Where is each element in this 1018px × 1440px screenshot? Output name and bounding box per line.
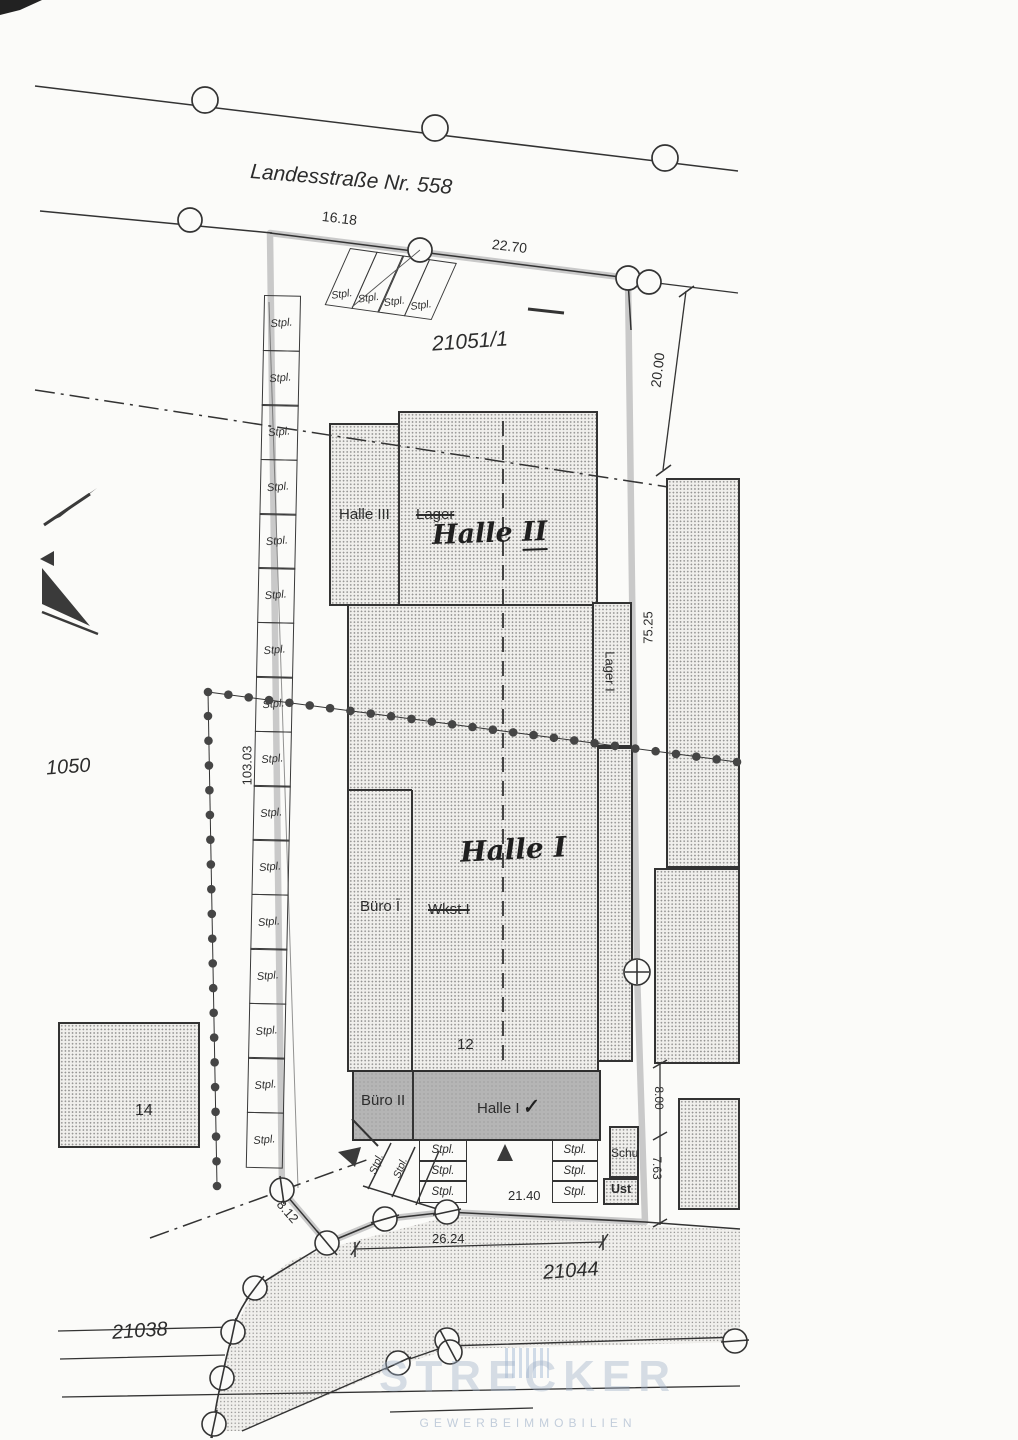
parking-stall-label: Stpl. bbox=[253, 1133, 276, 1147]
scan-artifact bbox=[0, 0, 42, 15]
parking-stall-label: Stpl. bbox=[563, 1144, 586, 1156]
parking-stall: Stpl. bbox=[257, 567, 295, 624]
parking-stall: Stpl. bbox=[249, 948, 287, 1005]
parking-stall-label: Stpl. bbox=[262, 698, 285, 712]
fence-line-vertical bbox=[208, 692, 217, 1186]
neighbor-building-lower bbox=[678, 1098, 740, 1210]
slanted-stall-label-2: Stpl. bbox=[391, 1156, 410, 1180]
dim-ne-depth: 20.00 bbox=[647, 352, 667, 389]
label-halle1-handwritten: Halle I bbox=[459, 830, 567, 869]
dim-south-front: 21.40 bbox=[508, 1188, 541, 1203]
label-buero1: Büro Ī bbox=[360, 898, 400, 915]
parking-stall-label: Stpl. bbox=[258, 915, 281, 929]
parcel-number-southwest: 21038 bbox=[111, 1318, 168, 1345]
parking-stall: Stpl. bbox=[248, 1003, 286, 1060]
mark-dash bbox=[528, 309, 564, 313]
watermark-subtitle: GEWERBEIMMOBILIEN bbox=[378, 1416, 678, 1430]
parking-stall-label: Stpl. bbox=[256, 1024, 279, 1038]
dim-2624-ticks bbox=[351, 1234, 608, 1257]
parking-stall: Stpl. bbox=[262, 350, 300, 407]
building-halle1-east-wing bbox=[597, 747, 633, 1062]
parking-stall-label: Stpl. bbox=[265, 589, 288, 603]
parking-stall-label: Stpl. bbox=[431, 1165, 454, 1177]
top-parking-stalls: Stpl.Stpl.Stpl.Stpl. bbox=[325, 248, 457, 320]
building-14 bbox=[58, 1022, 200, 1148]
parcel-number-main: 21051/1 bbox=[431, 327, 508, 356]
house-number-west: 14 bbox=[135, 1102, 153, 1120]
parking-stall: Stpl. bbox=[254, 731, 292, 788]
parking-stall-label: Stpl. bbox=[384, 294, 407, 315]
label-halle2-handwritten: Halle II bbox=[431, 516, 547, 551]
watermark: STRECKER GEWERBEIMMOBILIEN bbox=[378, 1352, 678, 1430]
parcel-number-south: 21044 bbox=[542, 1258, 599, 1285]
west-parking-strip: Stpl.Stpl.Stpl.Stpl.Stpl.Stpl.Stpl.Stpl.… bbox=[246, 297, 301, 1168]
parking-stall: Stpl. bbox=[247, 1057, 285, 1114]
slanted-stall-label-1: Stpl. bbox=[367, 1152, 386, 1176]
dim-20-line bbox=[663, 291, 686, 470]
label-schu: Schu bbox=[611, 1146, 638, 1160]
parking-stall-label: Stpl. bbox=[261, 752, 284, 766]
parking-stall-label: Stpl. bbox=[264, 643, 287, 657]
parking-stall: Stpl. bbox=[246, 1111, 284, 1168]
label-buero2: Büro II bbox=[361, 1092, 405, 1109]
dim-se-lower: 7.63 bbox=[650, 1148, 664, 1188]
parking-stall: Stpl. bbox=[250, 894, 288, 951]
north-arrow bbox=[40, 488, 98, 634]
parking-stall: Stpl. bbox=[419, 1180, 467, 1202]
parking-stall-label: Stpl. bbox=[431, 1186, 454, 1198]
dim-front-left: 16.18 bbox=[321, 208, 358, 228]
parking-stall-label: Stpl. bbox=[259, 861, 282, 875]
parking-stall-label: Stpl. bbox=[410, 298, 433, 319]
dim-street-span: 26.24 bbox=[432, 1231, 465, 1246]
parking-stall: Stpl. bbox=[419, 1160, 467, 1182]
boundary-east-dark-top bbox=[628, 280, 631, 330]
parking-stall-label: Stpl. bbox=[255, 1078, 278, 1092]
parking-stall: Stpl. bbox=[419, 1139, 467, 1161]
parking-stall-label: Stpl. bbox=[357, 291, 380, 312]
dim-se-upper: 8.00 bbox=[652, 1078, 666, 1118]
label-wkst-struck: Wkst I bbox=[428, 901, 470, 918]
road-edge-lower-left bbox=[242, 1363, 398, 1431]
parking-stall-label: Stpl. bbox=[260, 806, 283, 820]
dim-2624-line bbox=[355, 1242, 603, 1249]
fence-dots-vertical bbox=[204, 712, 222, 1191]
parking-stall-label: Stpl. bbox=[266, 534, 289, 548]
dim-sw: 8.12 bbox=[274, 1197, 302, 1226]
dim-west: 103.03 bbox=[240, 741, 255, 791]
label-lager1: Lager I bbox=[603, 647, 618, 697]
axis-line-lower bbox=[150, 1158, 372, 1238]
south-parking-left-column: Stpl.Stpl.Stpl. bbox=[419, 1141, 467, 1203]
parking-stall: Stpl. bbox=[255, 676, 293, 733]
parcel-number-west: 1050 bbox=[45, 754, 91, 780]
parking-stall-label: Stpl. bbox=[563, 1186, 586, 1198]
entrance-triangle bbox=[497, 1144, 513, 1161]
label-halle4: Halle I✓ bbox=[477, 1096, 537, 1118]
dim-east: 75.25 bbox=[641, 608, 656, 648]
parking-stall-label: Stpl. bbox=[331, 287, 354, 308]
parking-stall: Stpl. bbox=[259, 459, 297, 516]
watermark-name: STRECKER bbox=[378, 1352, 678, 1402]
house-number-main: 12 bbox=[457, 1036, 474, 1053]
street-edge-north bbox=[35, 86, 738, 171]
label-ust: Ust bbox=[611, 1182, 631, 1196]
front-extension-line bbox=[649, 282, 738, 293]
parking-stall-label: Stpl. bbox=[269, 371, 292, 385]
halle4-checkmark: ✓ bbox=[520, 1095, 539, 1119]
parking-stall-label: Stpl. bbox=[270, 317, 293, 331]
parking-stall: Stpl. bbox=[552, 1180, 598, 1202]
parking-stall: Stpl. bbox=[256, 622, 294, 679]
parking-stall-label: Stpl. bbox=[268, 426, 291, 440]
label-halle3: Halle III bbox=[339, 506, 390, 523]
parking-stall: Stpl. bbox=[263, 295, 301, 352]
neighbor-building-upper bbox=[666, 478, 740, 868]
parking-stall-label: Stpl. bbox=[431, 1144, 454, 1156]
parking-stall: Stpl. bbox=[258, 513, 296, 570]
parking-stall: Stpl. bbox=[253, 785, 291, 842]
street-edge-south bbox=[40, 211, 272, 233]
south-parking-right-column: Stpl.Stpl.Stpl. bbox=[552, 1141, 598, 1203]
corner-triangle bbox=[338, 1147, 361, 1167]
parking-stall-label: Stpl. bbox=[267, 480, 290, 494]
parking-stall: Stpl. bbox=[552, 1160, 598, 1182]
dim-front-right: 22.70 bbox=[491, 236, 528, 256]
neighbor-building-middle bbox=[654, 868, 740, 1064]
road-curve-west bbox=[212, 1243, 327, 1438]
street-name: Landesstraße Nr. 558 bbox=[249, 160, 453, 200]
parking-stall: Stpl. bbox=[251, 839, 289, 896]
parking-stall: Stpl. bbox=[552, 1139, 598, 1161]
parking-stall-label: Stpl. bbox=[563, 1165, 586, 1177]
south-boundary-line bbox=[327, 1212, 740, 1243]
parking-stall: Stpl. bbox=[261, 404, 299, 461]
site-plan: Stpl.Stpl.Stpl.Stpl.Stpl.Stpl.Stpl.Stpl.… bbox=[0, 0, 1018, 1440]
parking-stall-label: Stpl. bbox=[257, 970, 280, 984]
